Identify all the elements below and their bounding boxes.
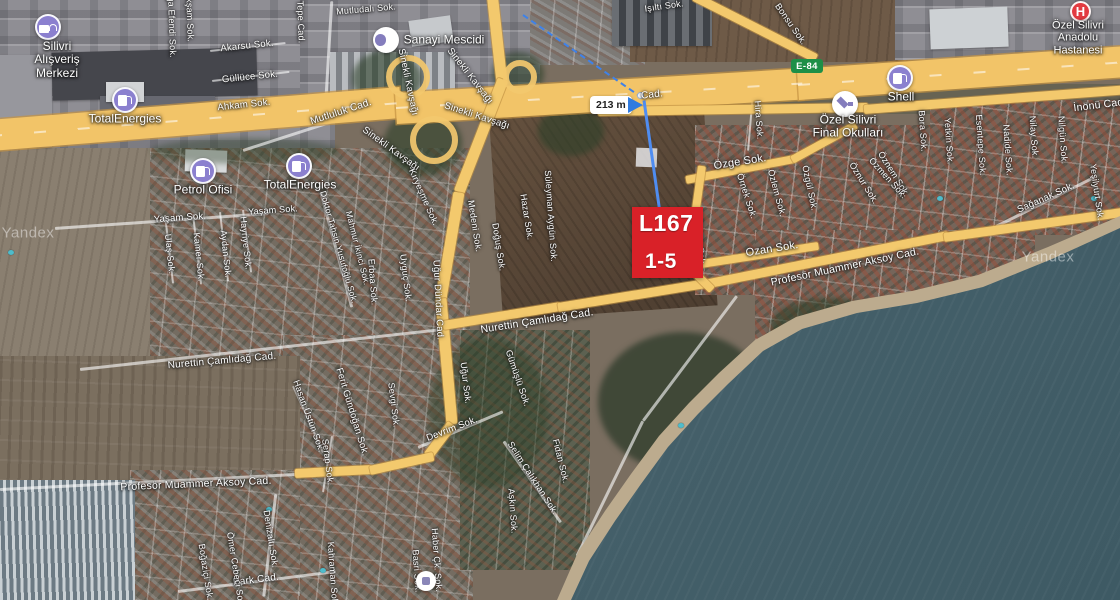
map-decor: [386, 55, 430, 99]
parcel-range: 1-5: [639, 250, 699, 274]
map-decor: [503, 60, 537, 94]
parcel-marker[interactable]: L167 1-5: [632, 207, 703, 278]
map-decor: [937, 196, 943, 201]
map-decor: [130, 470, 300, 600]
map-decor: [266, 507, 272, 512]
map-canvas[interactable]: E-84 Akarsu Sok.Güllüce Sok.Ahkam Sok.Ağ…: [0, 0, 1120, 600]
map-decor: [0, 356, 300, 481]
measure-arrow-icon: [628, 97, 643, 113]
map-decor: [678, 423, 684, 428]
map-decor: [1091, 196, 1097, 201]
map-decor: [929, 7, 1008, 50]
distance-tooltip: 213 m: [590, 96, 632, 114]
map-decor: [612, 0, 712, 46]
parcel-code: L167: [639, 210, 699, 237]
map-decor: [0, 148, 162, 356]
road-badge-label: E-84: [796, 61, 818, 72]
map-decor: [0, 480, 135, 600]
map-decor: [320, 568, 326, 573]
road-badge-e84: E-84: [791, 59, 823, 73]
map-decor: [410, 116, 458, 164]
map-decor: [106, 82, 144, 102]
distance-value: 213 m: [596, 99, 626, 111]
map-decor: [51, 47, 257, 100]
map-decor: [8, 250, 14, 255]
